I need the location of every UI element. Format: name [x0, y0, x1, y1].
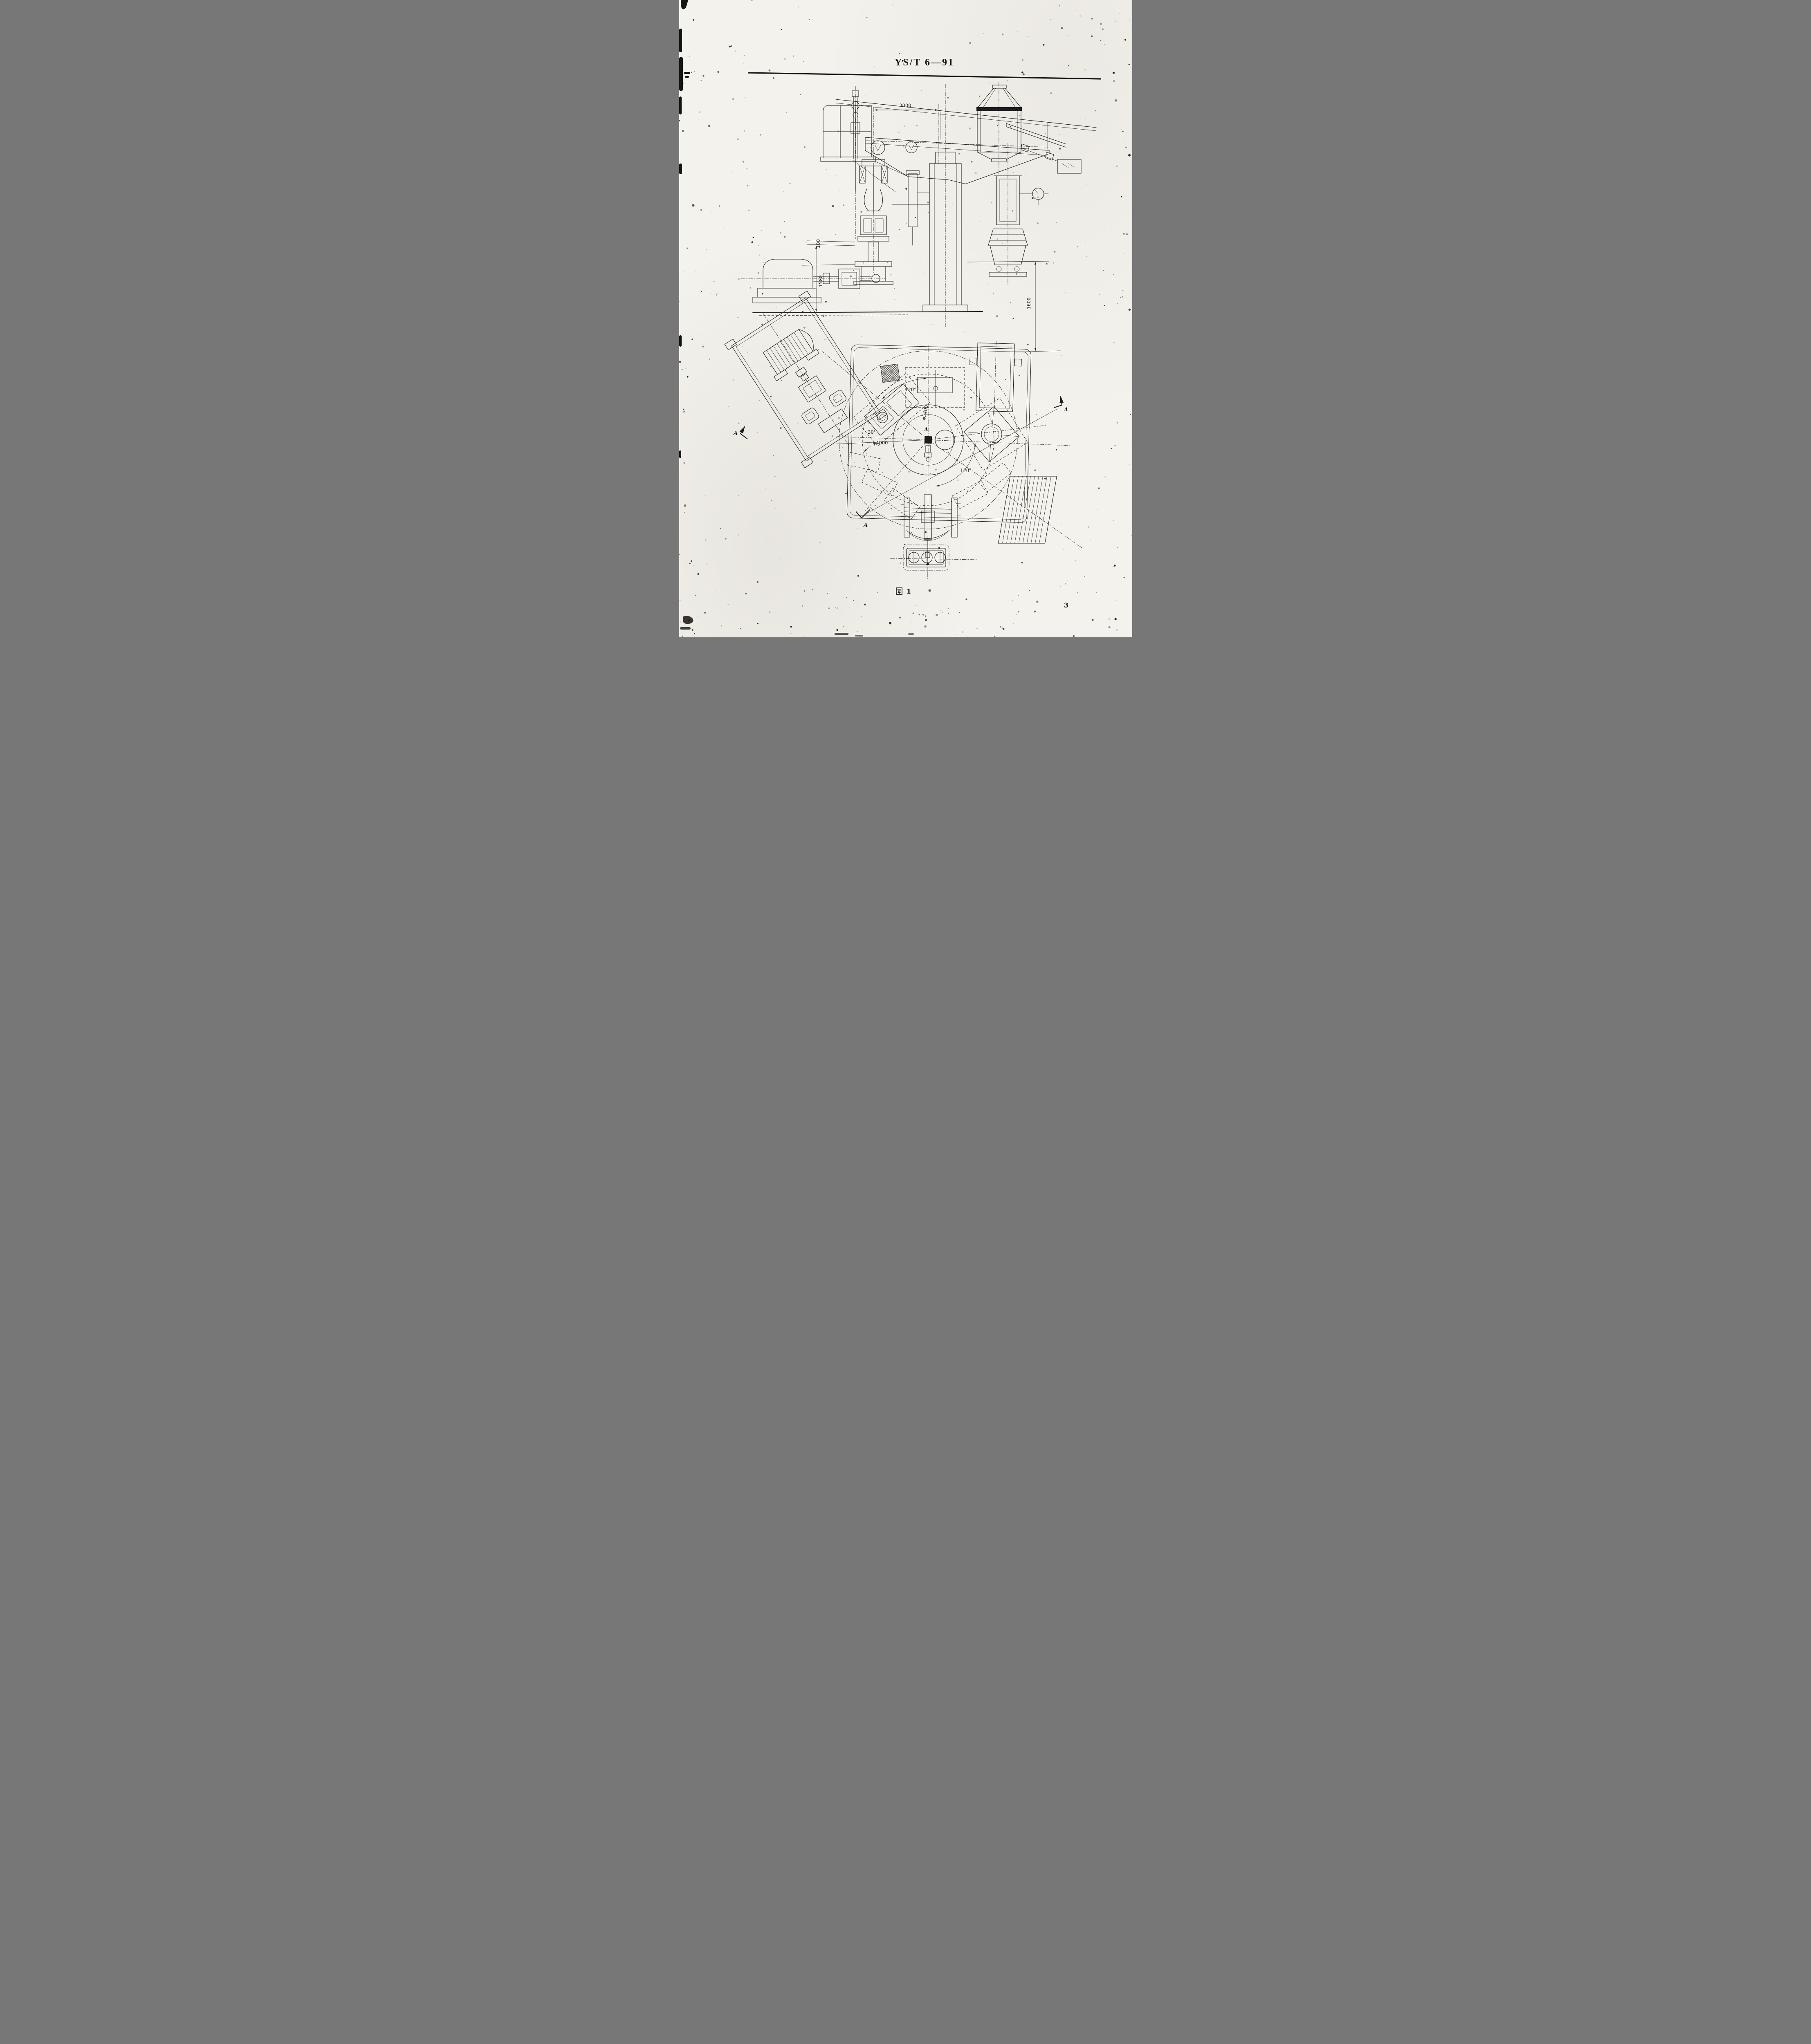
figure-caption: 1 — [896, 587, 911, 595]
central-column — [892, 84, 968, 327]
mast-hoist — [851, 86, 860, 239]
dia-5400-label: φ5400 — [920, 405, 929, 421]
center-a-label: A — [923, 427, 928, 433]
document-page: YS/T 6—91 — [679, 0, 1132, 637]
hatched-pad — [880, 364, 900, 382]
dimension-1600: 1600 — [1014, 262, 1060, 352]
angle-30-label: 30' — [868, 429, 875, 435]
section-a-bottom-label: A — [863, 522, 868, 529]
operator-platform-railing — [821, 105, 908, 192]
arc-120-bottom — [936, 444, 975, 486]
sand-hopper — [976, 82, 1022, 174]
section-marker-bottom: A — [856, 510, 870, 529]
dia-4000-label: φ4000 — [873, 440, 888, 446]
dim-1580-label: 1580 — [818, 275, 824, 287]
scan-artifacts — [679, 0, 914, 637]
dimension-1580: 1580 — [816, 246, 824, 312]
ladle-circle — [935, 430, 955, 450]
dimension-2000: 2000 — [873, 103, 939, 164]
dia-4000-callout: φ4000 — [864, 440, 888, 452]
electric-motor — [760, 326, 821, 381]
jolt-ram-station — [854, 139, 893, 285]
front-elevation-view: 2000 — [741, 82, 1096, 352]
angle-120-bottom-label: 120° — [960, 468, 972, 473]
header-rule — [748, 73, 1101, 79]
figure-number: 1 — [907, 587, 911, 595]
pump-motor-platform — [721, 286, 891, 473]
section-a-right-label: A — [1063, 407, 1068, 413]
section-marker-left: A — [733, 427, 747, 439]
dimension-100: 100 — [807, 239, 855, 248]
page-number: 3 — [1064, 601, 1068, 609]
hopper-plan — [955, 398, 1027, 470]
anchor-flange — [890, 545, 978, 579]
section-trace — [865, 409, 1057, 514]
rammer-unit — [853, 373, 930, 446]
section-marker-right: A — [1054, 397, 1068, 413]
figure-1-drawing: YS/T 6—91 — [679, 0, 1132, 637]
squeeze-station — [988, 143, 1028, 286]
plan-view: 120° φ5400 30' φ4000 120° A A A A — [721, 286, 1082, 579]
standard-code: YS/T 6—91 — [895, 57, 954, 68]
paper-speckles — [679, 0, 1132, 637]
angle-120-top-label: 120° — [905, 387, 916, 392]
section-a-left-label: A — [733, 430, 738, 437]
hanzi-tu-glyph — [896, 588, 902, 594]
pressure-gauge — [1019, 188, 1048, 205]
dim-1600-label: 1600 — [1026, 297, 1032, 309]
dim-top-width-label: 2000 — [899, 103, 911, 108]
page-header: YS/T 6—91 — [748, 57, 1101, 79]
